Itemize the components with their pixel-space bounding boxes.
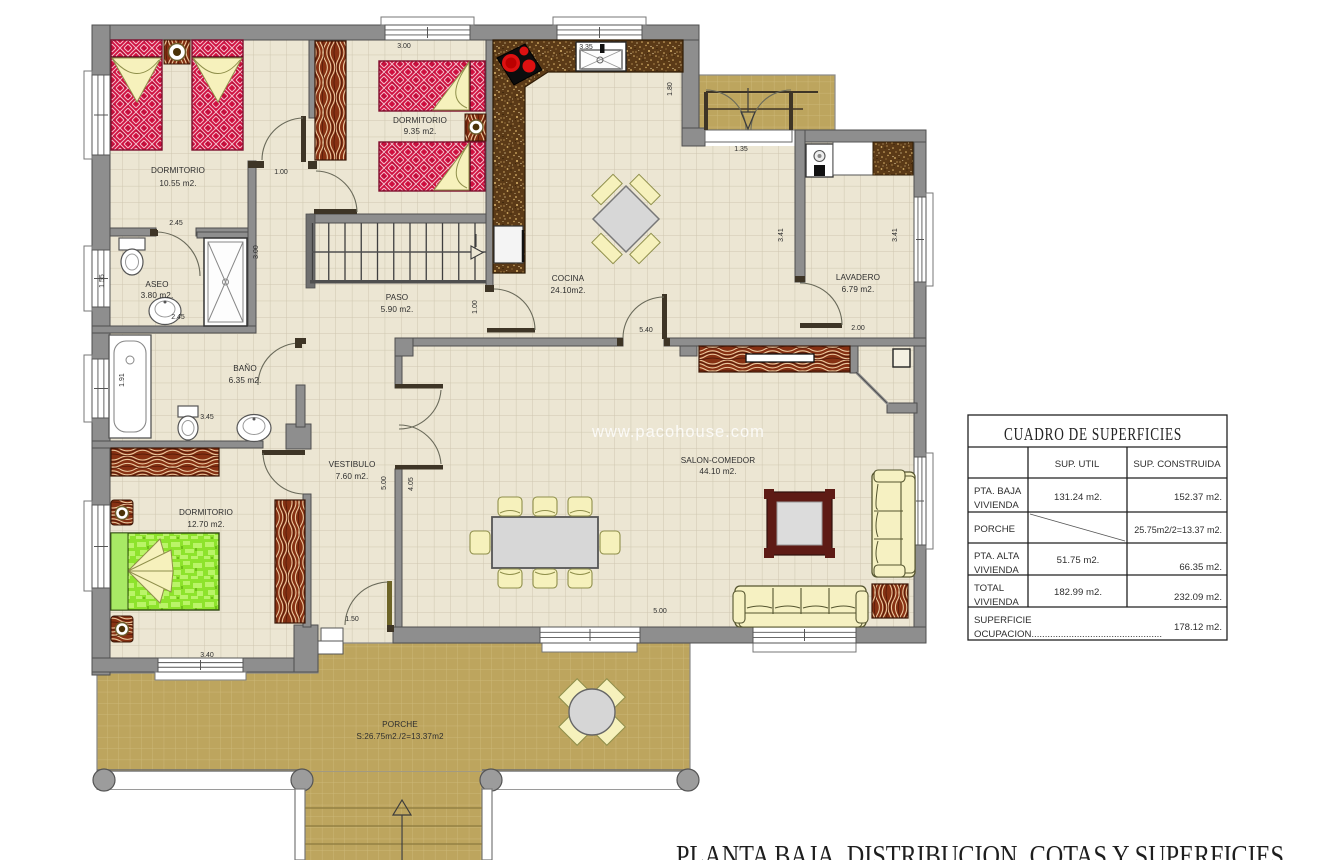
svg-text:DORMITORIO: DORMITORIO <box>393 116 447 125</box>
svg-text:VIVIENDA: VIVIENDA <box>974 597 1019 608</box>
svg-text:VESTIBULO: VESTIBULO <box>329 460 376 469</box>
svg-text:PTA. BAJA: PTA. BAJA <box>974 486 1022 497</box>
svg-text:152.37 m2.: 152.37 m2. <box>1174 492 1222 503</box>
svg-text:1.91: 1.91 <box>119 373 126 387</box>
svg-text:3.45: 3.45 <box>200 414 214 421</box>
svg-text:VIVIENDA: VIVIENDA <box>974 565 1019 576</box>
svg-text:5.00: 5.00 <box>653 608 667 615</box>
svg-text:6.79 m2.: 6.79 m2. <box>842 285 875 294</box>
svg-text:3.00: 3.00 <box>397 43 411 50</box>
svg-text:5.00: 5.00 <box>381 476 388 490</box>
svg-text:12.70 m2.: 12.70 m2. <box>187 520 224 529</box>
svg-text:PORCHE: PORCHE <box>974 524 1015 535</box>
svg-text:51.75 m2.: 51.75 m2. <box>1057 555 1100 566</box>
svg-text:SUP. UTIL: SUP. UTIL <box>1055 459 1100 470</box>
svg-text:OCUPACION.....................: OCUPACION...............................… <box>974 629 1162 640</box>
svg-text:131.24 m2.: 131.24 m2. <box>1054 492 1102 503</box>
svg-text:3.41: 3.41 <box>778 228 785 242</box>
svg-text:PORCHE: PORCHE <box>382 720 418 729</box>
svg-text:66.35 m2.: 66.35 m2. <box>1179 562 1222 573</box>
svg-text:9.35 m2.: 9.35 m2. <box>404 127 437 136</box>
svg-text:4.05: 4.05 <box>408 477 415 491</box>
svg-text:25.75m2/2=13.37 m2.: 25.75m2/2=13.37 m2. <box>1134 525 1222 535</box>
svg-text:2.00: 2.00 <box>851 325 865 332</box>
svg-text:SUPERFICIE: SUPERFICIE <box>974 615 1032 626</box>
svg-text:SALON-COMEDOR: SALON-COMEDOR <box>681 456 756 465</box>
svg-text:1.55: 1.55 <box>99 274 106 288</box>
svg-text:7.60 m2.: 7.60 m2. <box>336 472 369 481</box>
svg-text:PASO: PASO <box>386 293 409 302</box>
svg-text:10.55 m2.: 10.55 m2. <box>159 179 196 188</box>
svg-text:CUADRO DE SUPERFICIES: CUADRO DE SUPERFICIES <box>1004 424 1182 444</box>
svg-text:3.41: 3.41 <box>892 228 899 242</box>
svg-text:S:26.75m2./2=13.37m2: S:26.75m2./2=13.37m2 <box>356 732 444 741</box>
svg-text:1.00: 1.00 <box>472 300 479 314</box>
svg-text:2.45: 2.45 <box>169 220 183 227</box>
svg-text:3.35: 3.35 <box>579 44 593 51</box>
svg-text:5.40: 5.40 <box>639 327 653 334</box>
svg-text:TOTAL: TOTAL <box>974 583 1005 594</box>
svg-text:1.35: 1.35 <box>734 146 748 153</box>
svg-text:182.99 m2.: 182.99 m2. <box>1054 587 1102 598</box>
svg-text:5.90 m2.: 5.90 m2. <box>381 305 414 314</box>
svg-text:COCINA: COCINA <box>552 274 585 283</box>
svg-text:3.40: 3.40 <box>200 652 214 659</box>
svg-text:DORMITORIO: DORMITORIO <box>151 166 205 175</box>
svg-text:6.35 m2.: 6.35 m2. <box>229 376 262 385</box>
svg-text:1.00: 1.00 <box>274 169 288 176</box>
svg-text:VIVIENDA: VIVIENDA <box>974 500 1019 511</box>
svg-text:DORMITORIO: DORMITORIO <box>179 508 233 517</box>
svg-text:1.80: 1.80 <box>667 82 674 96</box>
svg-text:www.pacohouse.com: www.pacohouse.com <box>591 423 765 441</box>
svg-text:PLANTA BAJA. DISTRIBUCION. COT: PLANTA BAJA. DISTRIBUCION. COTAS Y SUPER… <box>676 840 1284 860</box>
svg-text:1.50: 1.50 <box>345 616 359 623</box>
svg-text:24.10m2.: 24.10m2. <box>551 286 586 295</box>
svg-text:3.80 m2.: 3.80 m2. <box>141 291 174 300</box>
svg-text:ASEO: ASEO <box>145 280 168 289</box>
svg-text:3.00: 3.00 <box>253 245 260 259</box>
svg-text:LAVADERO: LAVADERO <box>836 273 880 282</box>
svg-text:PTA. ALTA: PTA. ALTA <box>974 551 1020 562</box>
svg-text:SUP. CONSTRUIDA: SUP. CONSTRUIDA <box>1133 459 1221 470</box>
svg-text:2.45: 2.45 <box>171 314 185 321</box>
svg-text:178.12 m2.: 178.12 m2. <box>1174 622 1222 633</box>
svg-text:BAÑO: BAÑO <box>233 363 257 373</box>
svg-text:232.09 m2.: 232.09 m2. <box>1174 592 1222 603</box>
svg-text:44.10 m2.: 44.10 m2. <box>699 467 736 476</box>
